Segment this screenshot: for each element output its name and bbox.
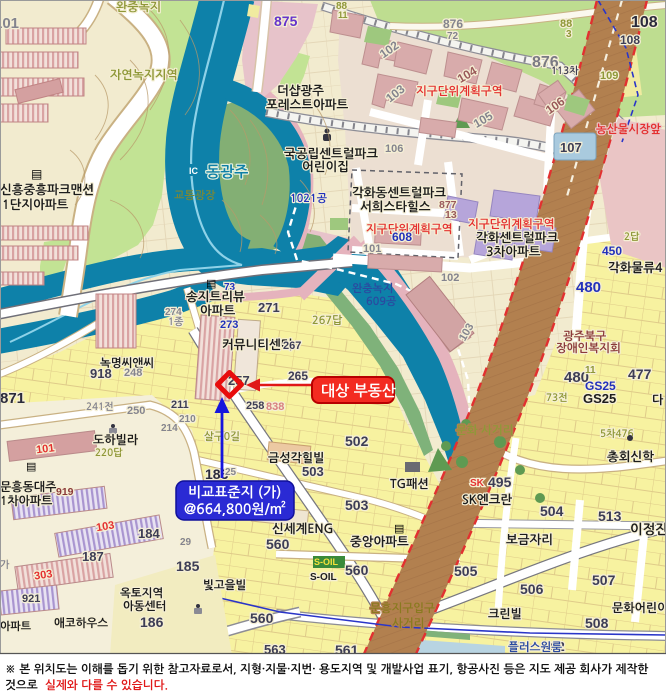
svg-text:258: 258 xyxy=(246,400,264,412)
svg-text:186: 186 xyxy=(140,614,164,630)
svg-text:875: 875 xyxy=(274,13,298,29)
svg-text:871: 871 xyxy=(0,390,25,407)
svg-text:250: 250 xyxy=(127,405,145,417)
svg-text:S-OIL: S-OIL xyxy=(314,557,339,567)
svg-text:505: 505 xyxy=(454,563,478,579)
svg-text:108: 108 xyxy=(631,14,658,31)
svg-text:919: 919 xyxy=(56,486,74,498)
svg-text:838: 838 xyxy=(266,401,284,413)
svg-text:480: 480 xyxy=(576,279,601,296)
svg-text:508: 508 xyxy=(585,615,609,631)
svg-text:72: 72 xyxy=(447,31,459,42)
svg-text:450: 450 xyxy=(602,244,622,258)
svg-text:SK: SK xyxy=(470,478,485,489)
svg-text:273: 273 xyxy=(220,319,238,331)
svg-text:IC: IC xyxy=(189,166,199,176)
svg-text:108: 108 xyxy=(620,33,640,47)
svg-text:101: 101 xyxy=(35,442,55,456)
svg-text:GS25: GS25 xyxy=(583,391,616,406)
svg-text:495: 495 xyxy=(488,474,512,490)
svg-text:265: 265 xyxy=(288,369,308,383)
svg-text:▤: ▤ xyxy=(26,461,36,473)
svg-text:109: 109 xyxy=(600,70,618,82)
svg-text:504: 504 xyxy=(540,503,564,519)
svg-text:503: 503 xyxy=(345,497,369,513)
svg-text:211: 211 xyxy=(171,399,189,411)
svg-text:513: 513 xyxy=(598,508,622,524)
svg-text:▤: ▤ xyxy=(31,167,42,181)
svg-text:▤: ▤ xyxy=(394,523,404,535)
svg-text:S-OIL: S-OIL xyxy=(310,572,337,583)
svg-text:184: 184 xyxy=(138,526,160,541)
svg-text:210: 210 xyxy=(179,414,196,425)
svg-text:921: 921 xyxy=(22,593,40,605)
svg-text:101: 101 xyxy=(0,15,19,32)
svg-text:506: 506 xyxy=(520,581,544,597)
svg-text:107: 107 xyxy=(560,140,582,155)
svg-text:214: 214 xyxy=(161,423,178,434)
svg-text:▤: ▤ xyxy=(206,278,216,290)
svg-text:608: 608 xyxy=(392,230,412,244)
svg-text:918: 918 xyxy=(90,366,112,381)
svg-text:29: 29 xyxy=(180,537,192,548)
svg-text:25: 25 xyxy=(225,467,237,478)
svg-text:267: 267 xyxy=(283,340,301,352)
svg-text:3: 3 xyxy=(566,29,572,40)
svg-text:507: 507 xyxy=(592,572,616,588)
svg-text:560: 560 xyxy=(250,610,274,626)
svg-text:101: 101 xyxy=(363,243,381,255)
svg-text:13: 13 xyxy=(445,209,457,221)
svg-text:503: 503 xyxy=(302,464,324,479)
svg-text:876: 876 xyxy=(443,17,463,31)
svg-text:271: 271 xyxy=(258,300,280,315)
svg-text:106: 106 xyxy=(385,143,403,155)
svg-text:102: 102 xyxy=(441,272,459,284)
svg-text:185: 185 xyxy=(176,558,200,574)
svg-text:11: 11 xyxy=(585,365,596,376)
svg-text:187: 187 xyxy=(82,549,104,564)
svg-text:502: 502 xyxy=(345,433,369,449)
svg-text:560: 560 xyxy=(345,562,369,578)
svg-text:11: 11 xyxy=(338,10,348,20)
svg-text:303: 303 xyxy=(33,568,53,582)
svg-text:560: 560 xyxy=(266,536,290,552)
svg-text:477: 477 xyxy=(628,366,652,382)
svg-text:248: 248 xyxy=(124,367,142,379)
